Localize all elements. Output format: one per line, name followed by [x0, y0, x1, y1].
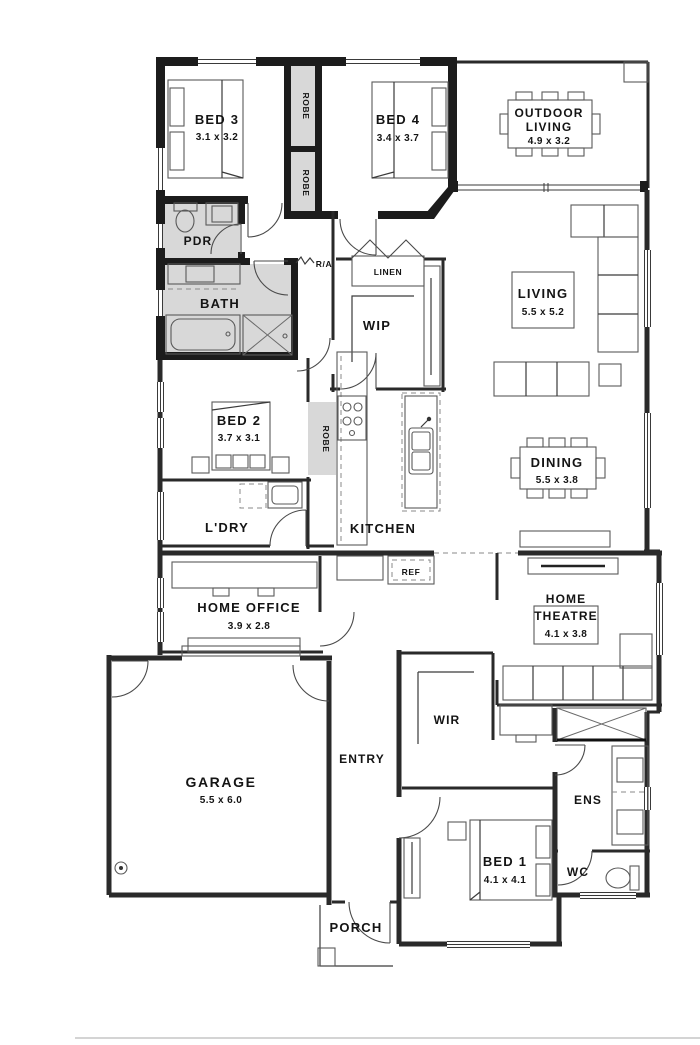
bed1-bed — [404, 820, 552, 900]
room-dims-bed3: 3.1 x 3.2 — [196, 132, 239, 143]
robe-label-1: ROBE — [301, 93, 311, 120]
room-label-wir: WIR — [434, 713, 461, 727]
ens-vanity — [612, 746, 648, 845]
room-label-home-theatre-2: THEATRE — [534, 609, 597, 623]
room-label-bed2: BED 2 — [217, 413, 261, 428]
room-dims-garage: 5.5 x 6.0 — [200, 795, 243, 806]
room-label-wc: WC — [567, 865, 589, 879]
bed4-bed — [372, 82, 448, 178]
room-dims-bed2: 3.7 x 3.1 — [218, 433, 261, 444]
ref-label: REF — [402, 567, 421, 577]
room-label-porch: PORCH — [330, 920, 383, 935]
ens-shower — [557, 708, 646, 740]
room-label-home-theatre-1: HOME — [546, 592, 586, 606]
room-label-dining: DINING — [531, 455, 584, 470]
robe-label-2: ROBE — [301, 170, 311, 197]
room-label-bed1: BED 1 — [483, 854, 527, 869]
room-label-pdr: PDR — [184, 234, 213, 248]
bed3-bed — [168, 80, 243, 178]
linen-label: LINEN — [374, 267, 403, 277]
room-label-outdoor-living-2: LIVING — [526, 120, 573, 134]
laundry-bench — [240, 482, 302, 508]
room-dims-living: 5.5 x 5.2 — [522, 307, 565, 318]
room-dims-home-theatre: 4.1 x 3.8 — [545, 629, 588, 640]
room-dims-bed1: 4.1 x 4.1 — [484, 875, 527, 886]
room-label-bath: BATH — [200, 296, 240, 311]
wc-toilet — [606, 866, 639, 890]
kitchen-island — [402, 393, 440, 511]
room-label-home-office: HOME OFFICE — [197, 600, 300, 615]
room-label-living: LIVING — [518, 286, 569, 301]
robe-label-3: ROBE — [321, 426, 331, 453]
room-label-ens: ENS — [574, 793, 602, 807]
garage-meter — [115, 862, 127, 874]
room-label-ldry: L'DRY — [205, 520, 249, 535]
room-label-kitchen: KITCHEN — [350, 521, 416, 536]
room-label-wip: WIP — [363, 318, 391, 333]
room-dims-bed4: 3.4 x 3.7 — [377, 133, 420, 144]
room-label-bed3: BED 3 — [195, 112, 239, 127]
room-dims-outdoor-living: 4.9 x 3.2 — [528, 136, 571, 147]
room-label-entry: ENTRY — [339, 752, 385, 766]
room-label-garage: GARAGE — [185, 774, 256, 790]
ra-label: R/A — [316, 259, 332, 269]
hall-dresser — [500, 705, 552, 742]
room-dims-home-office: 3.9 x 2.8 — [228, 621, 271, 632]
linen-bifold-doors — [352, 240, 424, 258]
room-label-bed4: BED 4 — [376, 112, 420, 127]
room-dims-dining: 5.5 x 3.8 — [536, 475, 579, 486]
ra-duct-symbol — [296, 257, 314, 264]
floor-plan-svg: BED 3 3.1 x 3.2 BED 4 3.4 x 3.7 ROBE ROB… — [0, 0, 700, 1045]
floor-plan: BED 3 3.1 x 3.2 BED 4 3.4 x 3.7 ROBE ROB… — [0, 0, 700, 1045]
room-label-outdoor-living-1: OUTDOOR — [514, 106, 583, 120]
